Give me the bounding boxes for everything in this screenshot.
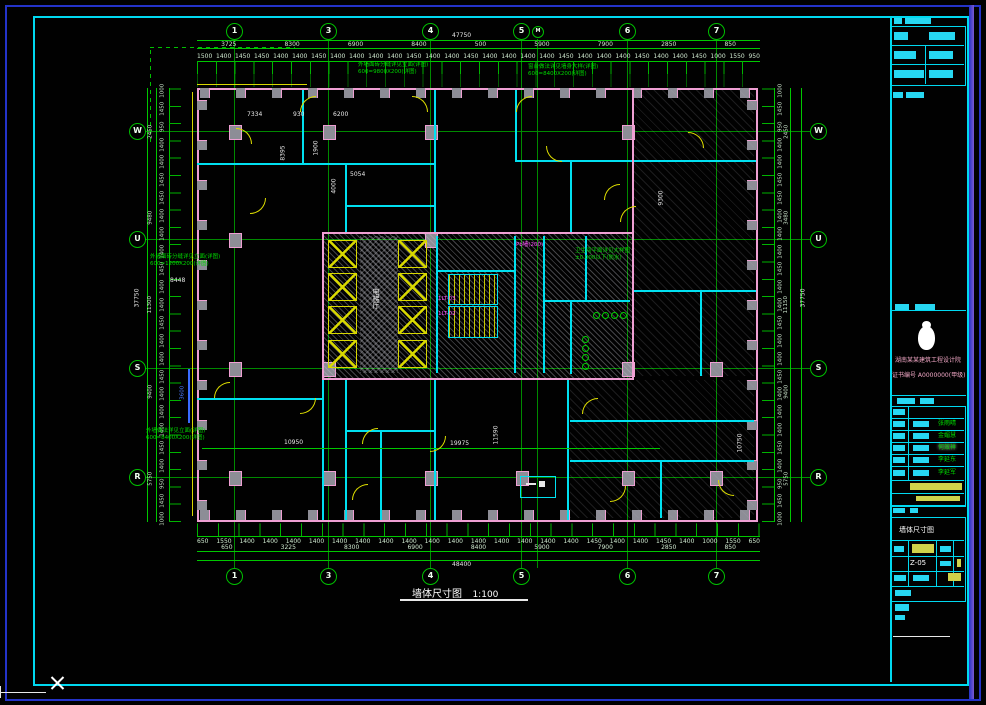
leader-note: 卫生间平面详见大样图±0.000以下(防水) [575,248,630,263]
toilet-fixture [620,312,627,319]
caption-underline [400,599,528,601]
dim-col-right-segments: 245034801115094005750 [782,88,791,522]
redacted-text-block [894,546,904,552]
dim-value: 6900 [407,545,422,551]
dim-value: 1400 [577,54,592,60]
drawing-element [890,395,966,396]
dim-value: 1400 [160,334,166,348]
dim-value: 1400 [160,155,166,169]
dim-overall-top: 47750 [452,33,471,39]
wall-type-label: Pb墙(200) [516,243,543,249]
dim-value: 3480 [784,211,790,225]
dim-row-top-segments: 3725830069008400500590079002850850 [197,42,760,48]
dim-value: 1450 [691,54,706,60]
room-dim: 4000 [332,178,338,193]
grid-bubble-right: S [810,360,827,377]
redacted-text-block [893,433,905,439]
signature: 金媚慧 [938,433,956,439]
toilet-fixture [593,312,600,319]
dim-value: 1400 [653,54,668,60]
dim-value: 2450 [148,124,154,138]
partition-wall [345,380,347,520]
dim-value: 1400 [672,54,687,60]
dim-line [197,560,760,561]
company-logo [918,326,935,350]
redacted-text-block [893,92,903,98]
dim-value: 5750 [148,472,154,486]
dim-line [197,48,760,49]
drawing-element [925,45,926,84]
dim-overall-right: 37750 [801,288,807,307]
stair-label: 1LT-03 [438,297,456,303]
partition-wall [434,90,436,232]
dim-col-left-segments: 245094801130094005750 [146,88,155,522]
redacted-text-block [913,445,929,451]
redacted-text-block [897,398,915,404]
dim-value: 1400 [160,458,166,472]
stair-label: 1LT-02 [438,312,456,318]
partition-wall [700,290,702,376]
drawing-element [890,493,964,494]
dim-value: 8300 [344,545,359,551]
partition-wall [515,160,634,162]
dim-value: 11150 [784,296,790,314]
dim-line-blue [188,369,190,423]
ucs-line [0,686,1,698]
dim-value: 950 [160,478,166,489]
room-dim: 5054 [350,172,365,178]
dim-value: 5900 [534,545,549,551]
grid-bubble-top: 7 [708,23,725,40]
redacted-text-block [893,409,905,415]
dim-value: 1450 [634,54,649,60]
redacted-text-block [894,575,906,581]
divider-line [893,636,950,637]
room-dim: 930 [293,112,304,118]
elevator-shaft [328,240,357,268]
dim-value: 1450 [463,54,478,60]
dim-value: 11300 [148,296,154,314]
redacted-text-block [894,70,924,78]
column [229,362,242,377]
core-partition [543,236,545,373]
dim-line [197,551,760,552]
elevator-shaft [398,273,427,301]
dim-extension-ticks [197,74,760,87]
highlight-bar [948,573,961,581]
dim-overall-left: 37750 [135,288,141,307]
column [323,471,336,486]
dim-value: 650 [221,545,232,551]
leader-note: 外墙面砖分缝详见立面(详图)600=1200X200(详图) [150,254,220,269]
dim-value: 1400 [520,54,535,60]
toilet-fixture [611,312,618,319]
room-dim: 6200 [333,112,348,118]
drawing-element: 600=9800X200(详图) [358,69,428,76]
elevator-shaft [328,306,357,334]
room-dim: 8395 [281,145,287,160]
dim-row-bottom-segments: 6503225830069008400590079002850850 [197,545,760,551]
dim-value: 850 [724,42,735,48]
grid-bubble-bottom: 1 [226,568,243,585]
toilet-fixture [582,363,589,370]
dim-value: 1400 [482,54,497,60]
dim-value: 1400 [273,54,288,60]
redacted-text-block [895,304,909,310]
dim-value: 1400 [160,298,166,312]
drawing-element [936,540,937,586]
dim-value: 9400 [148,385,154,399]
dim-value: 1400 [160,227,166,241]
room-dim: 10750 [738,433,744,452]
partition-wall [570,420,754,422]
core-partition [570,302,572,374]
highlight-bar [910,483,962,490]
elevator-shaft [398,340,427,368]
drawing-element [908,540,909,586]
partition-wall [197,163,436,165]
dim-value: 5750 [784,472,790,486]
dim-value: 850 [724,545,735,551]
grid-bubble-right: W [810,123,827,140]
redacted-text-block [913,575,929,581]
redacted-text-block [905,18,931,24]
grid-bubble-top: 4 [422,23,439,40]
core-partition [514,236,516,373]
redacted-text-block [895,590,911,596]
grid-bubble-left: R [129,469,146,486]
company-certificate: 证书编号 A0000000(甲级) [892,372,964,380]
dim-ticks [197,524,760,536]
drawing-element [890,586,964,587]
toilet-fixture [582,354,589,361]
partition-wall [570,160,572,233]
room-dim: 7334 [247,112,262,118]
dim-value: 2850 [661,545,676,551]
redacted-text-block [940,561,951,566]
grid-bubble-right: R [810,469,827,486]
dim-value: 1400 [539,54,554,60]
redacted-text-block [915,304,935,310]
dim-value: 8400 [411,42,426,48]
room-dim: 9300 [659,190,665,205]
drawing-element: ±0.000以下(防水) [575,255,630,262]
dim-value: 1000 [160,84,166,98]
dim-value: 1450 [311,54,326,60]
grid-bubble-left: W [129,123,146,140]
exterior-trim-line [197,84,307,85]
partition-wall [380,430,382,520]
redacted-text-block [913,421,929,427]
drawing-element: 600=1200X200(详图) [150,261,220,268]
dim-value: 1400 [387,54,402,60]
column [229,233,242,248]
dim-value: 1450 [558,54,573,60]
redacted-text-block [893,445,905,451]
dim-ticks [169,88,181,522]
grid-bubble-top: 1 [226,23,243,40]
redacted-text-block [929,51,953,59]
dim-value: 1400 [292,54,307,60]
dim-value: 9400 [784,385,790,399]
elevator-shaft [328,340,357,368]
redacted-text-block [929,32,955,40]
partition-wall [515,90,517,160]
signature: 张雨晴 [938,421,956,427]
dim-value: 1400 [160,405,166,419]
toilet-fixture [582,345,589,352]
dim-value: 1400 [596,54,611,60]
dim-value: 1450 [160,494,166,508]
signature: 何效祥 [938,445,956,451]
redacted-text-block [894,51,916,59]
grid-bubble-bottom: 3 [320,568,337,585]
grid-bubble-bottom: 4 [422,568,439,585]
drawing-element [890,454,964,455]
drawing-element [890,310,966,311]
dim-col-left-ticks: 1000145095014001400145014501400140014001… [158,88,168,522]
redacted-text-block [893,470,905,476]
dim-overall-bottom: 48400 [452,562,471,568]
redacted-text-block [893,421,905,427]
room-dim: 19975 [450,441,469,447]
dim-value: 5900 [534,42,549,48]
redacted-text-block [910,508,918,513]
leader-note: 窗台做法详见墙身大样(详图)600=8400X200(详图) [528,64,598,79]
grid-bubble-bottom: 5 [513,568,530,585]
room-label-lobby: 电梯厅 [372,288,379,309]
redacted-text-block [920,398,934,404]
dim-value: 1500 [197,54,212,60]
drawing-element [890,466,964,467]
elevator-shaft [398,240,427,268]
drawing-element [908,406,909,481]
dim-value: 1400 [444,54,459,60]
dim-value: 1400 [160,137,166,151]
drawing-element [890,480,964,481]
ucs-line [0,692,46,693]
partition-wall [567,380,569,520]
dim-value: 1400 [330,54,345,60]
dim-ticks [762,88,774,522]
drawing-element [890,505,966,506]
company-name: 湖南某某建筑工程设计院 [892,357,964,365]
dim-value: 1000 [710,54,725,60]
dim-value: 7900 [598,545,613,551]
equipment-box [520,476,556,498]
partition-wall [345,163,347,233]
partition-wall [634,160,756,162]
dim-value: 1400 [501,54,516,60]
dim-line [774,88,775,522]
dim-value: 1450 [160,191,166,205]
core-partition [585,236,587,302]
dim-value: 1450 [160,173,166,187]
exterior-trim-line [192,92,193,516]
redacted-text-block [893,457,905,463]
dim-value: 1400 [160,351,166,365]
partition-wall [345,205,436,207]
redacted-text-block [940,546,951,552]
dim-value: 1450 [254,54,269,60]
partition-wall [322,378,324,520]
core-partition [436,236,438,373]
column [229,471,242,486]
dim-value: 1400 [160,387,166,401]
grid-bubble-bottom: 7 [708,568,725,585]
dim-value: 2850 [661,42,676,48]
redacted-text-block [893,508,905,513]
dim-value: 3725 [221,42,236,48]
dim-value: 950 [748,54,759,60]
grid-bubble-left: U [129,231,146,248]
dim-value: 1400 [160,209,166,223]
sheet-border-shadow [969,5,974,699]
redacted-text-block [913,433,929,439]
column [425,125,438,140]
grid-bubble-top: 3 [320,23,337,40]
dim-value: 1400 [349,54,364,60]
highlight-bar [912,544,934,553]
drawing-element [890,442,964,443]
core-partition [438,270,514,272]
dim-value: 1400 [160,280,166,294]
drawing-number: Z-05 [910,560,926,567]
equipment-mark [526,483,536,485]
drawing-element [890,418,964,419]
dim-value: 950 [160,121,166,132]
room-dim-blue: 3600 [180,386,186,400]
column [323,125,336,140]
dim-value: 1450 [160,102,166,116]
redacted-text-block [913,470,929,476]
room-dim: 10950 [284,440,303,446]
redacted-text-block [894,18,902,24]
partition-wall [634,290,756,292]
dim-line [197,536,760,537]
dim-value: 1450 [235,54,250,60]
redacted-text-block [929,70,953,78]
grid-bubble-top: 6 [619,23,636,40]
dim-value: 8400 [471,545,486,551]
drawing-caption: 墙体尺寸图 1:100 [412,585,498,600]
grid-bubble-top-minor: M [532,26,544,38]
dim-value: 6900 [348,42,363,48]
equipment-mark [539,481,545,487]
dim-value: 7900 [598,42,613,48]
partition-wall [345,430,436,432]
partition-wall [570,460,754,462]
redacted-text-block [906,92,924,98]
dim-value: 1450 [406,54,421,60]
redacted-text-block [913,457,929,463]
titleblock-drawing-title: 墙体尺寸图 [899,527,934,534]
dim-value: 1400 [425,54,440,60]
drawing-element [890,45,964,46]
signature: 李延东 [938,457,956,463]
dim-value: 1450 [160,316,166,330]
leader-note: 外墙做法详见立面(详图)600=8400X200(详图) [146,428,205,443]
dim-value: 1450 [160,369,166,383]
drawing-element [890,430,964,431]
highlight-bar [957,559,961,567]
company-logo [922,321,931,329]
drawing-element: 600=8400X200(详图) [528,71,598,78]
room-dim: 11590 [494,425,500,444]
dim-ticks [197,61,760,74]
grid-bubble-right: U [810,231,827,248]
redacted-text-block [895,604,909,611]
elevator-shaft [328,273,357,301]
dim-value: 9480 [148,211,154,225]
dim-value: 1000 [160,512,166,526]
dim-value: 2450 [784,124,790,138]
cad-viewport[interactable]: 47750 3725830069008400500590079002850850… [0,0,986,705]
grid-bubble-bottom: 6 [619,568,636,585]
dim-value: 8300 [284,42,299,48]
dim-value: 1550 [729,54,744,60]
signature: 李延军 [938,470,956,476]
dim-value: 3225 [281,545,296,551]
redacted-text-block [895,615,905,620]
dim-value: 1400 [368,54,383,60]
toilet-fixture [582,336,589,343]
elevator-shaft [398,306,427,334]
dim-value: 1400 [615,54,630,60]
redacted-text-block [894,32,908,40]
dim-value: 500 [475,42,486,48]
dim-row-top-ticks: 1500140014501450140014001450140014001400… [197,54,760,60]
drawing-element: 600=8400X200(详图) [146,435,205,442]
grid-bubble-left: S [129,360,146,377]
dim-line [156,88,157,522]
dim-value: 1400 [216,54,231,60]
partition-wall [660,460,662,518]
room-dim: 8448 [170,278,185,284]
highlight-bar [916,496,960,501]
grid-bubble-top: 5 [513,23,530,40]
room-dim: 1900 [314,140,320,155]
column [425,471,438,486]
drawing-element [890,64,964,65]
toilet-fixture [602,312,609,319]
leader-note: 外墙面砖分缝详见立面(详图)600=9800X200(详图) [358,62,428,77]
